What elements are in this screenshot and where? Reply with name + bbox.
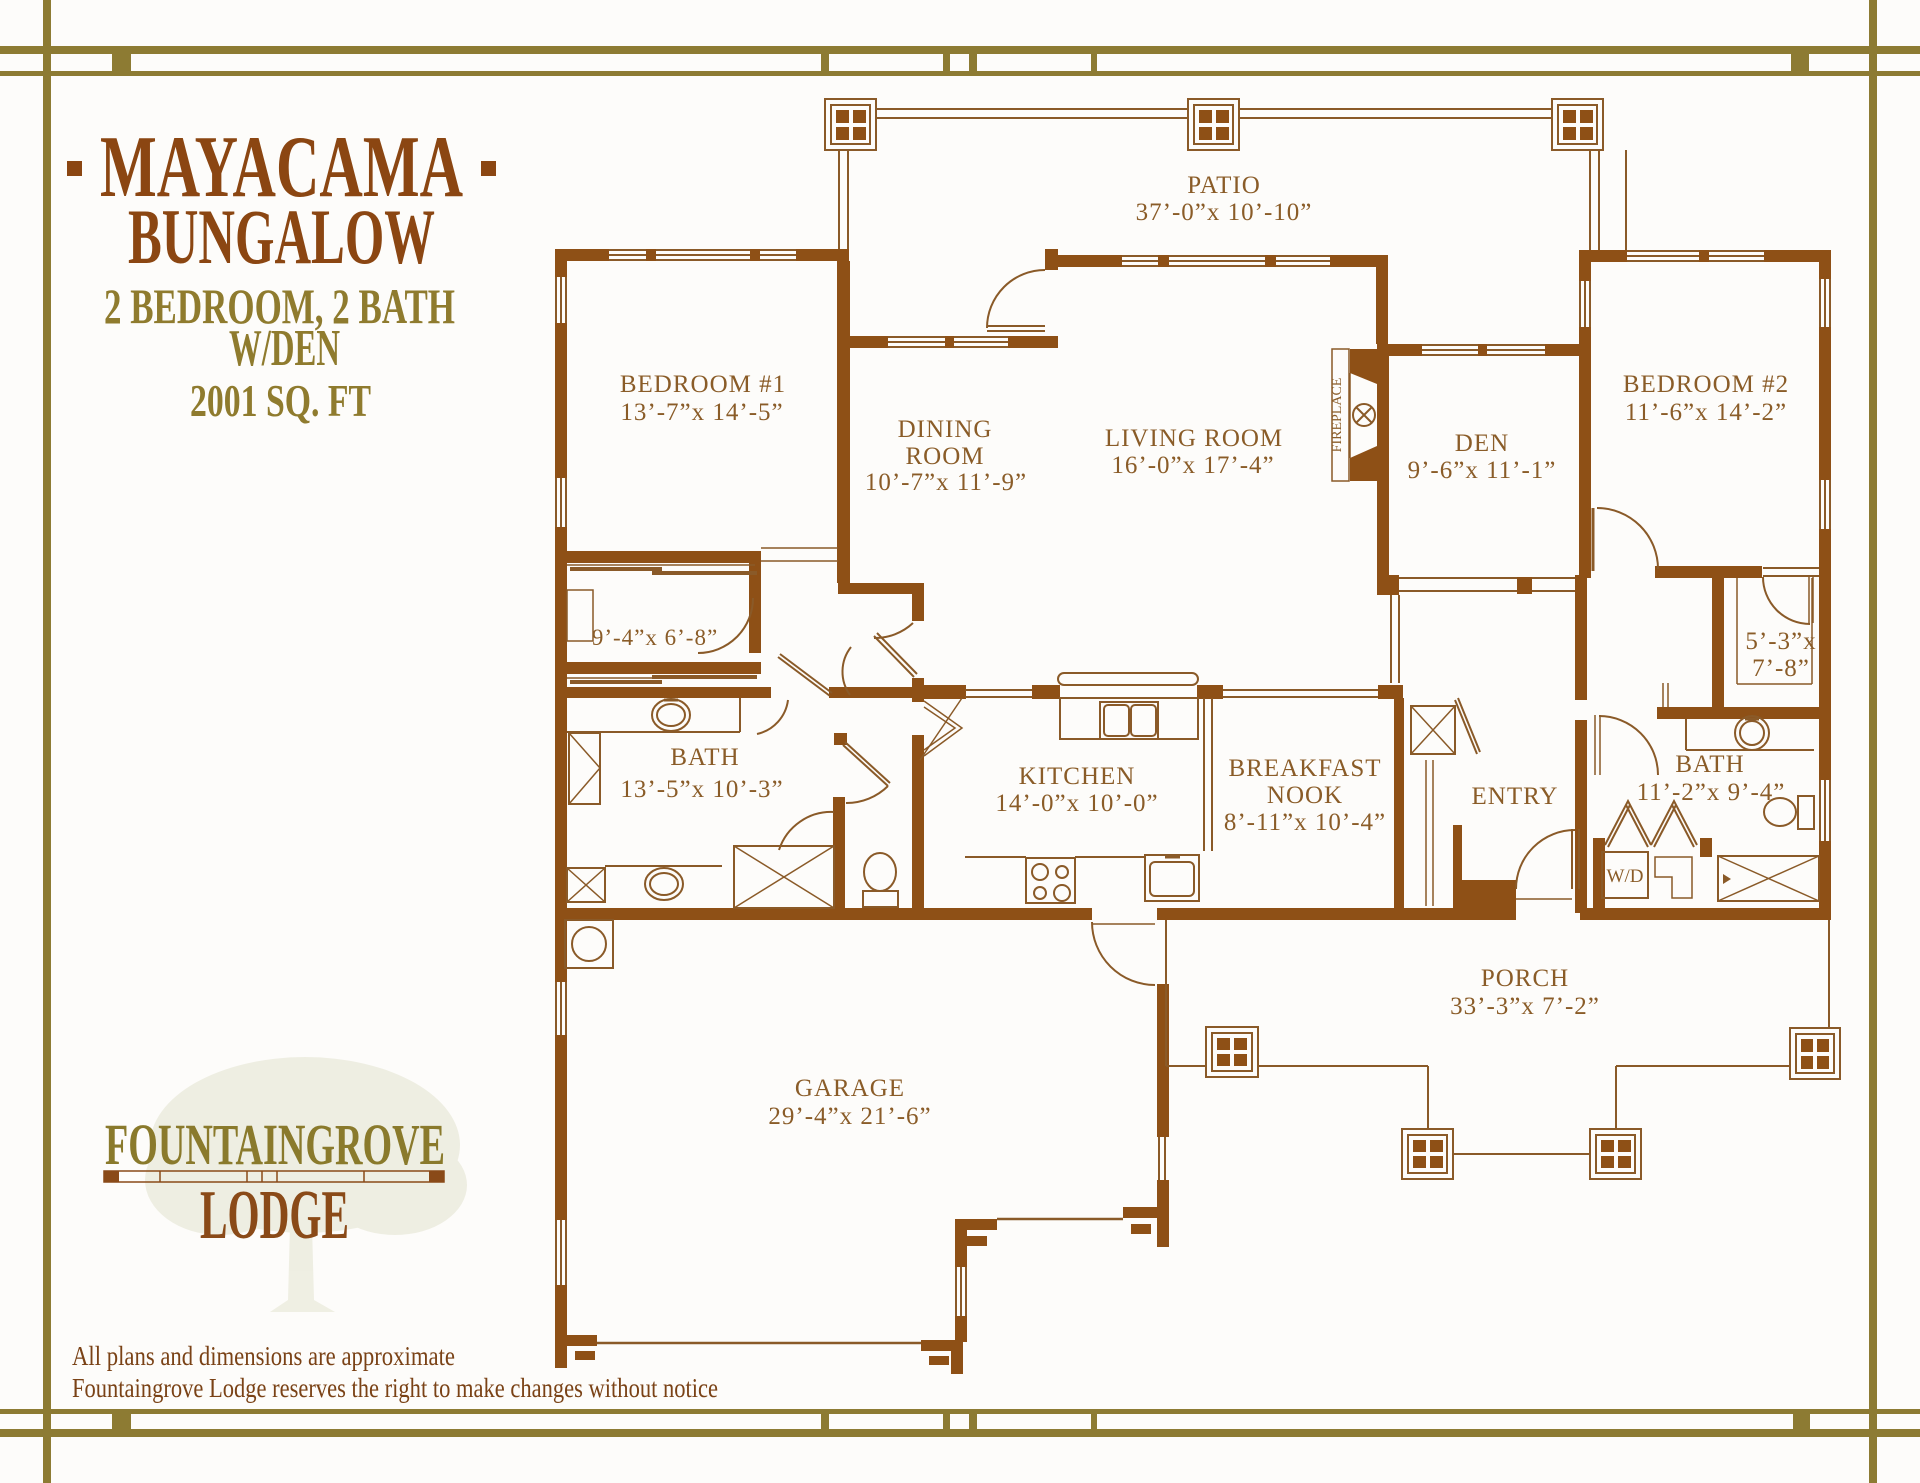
svg-text:10’-7”x 11’-9”: 10’-7”x 11’-9” xyxy=(865,469,1027,496)
svg-text:37’-0”x 10’-10”: 37’-0”x 10’-10” xyxy=(1136,199,1313,226)
svg-text:LODGE: LODGE xyxy=(200,1177,349,1254)
svg-text:11’-2”x 9’-4”: 11’-2”x 9’-4” xyxy=(1637,779,1786,806)
svg-text:13’-7”x 14’-5”: 13’-7”x 14’-5” xyxy=(620,399,783,426)
svg-text:FOUNTAINGROVE: FOUNTAINGROVE xyxy=(105,1112,445,1177)
svg-text:W/D: W/D xyxy=(1607,866,1644,887)
svg-text:14’-0”x 10’-0”: 14’-0”x 10’-0” xyxy=(995,790,1158,817)
svg-text:FIREPLACE: FIREPLACE xyxy=(1330,378,1345,453)
svg-text:KITCHEN: KITCHEN xyxy=(1019,763,1136,790)
svg-text:7’-8”: 7’-8” xyxy=(1752,655,1810,682)
svg-text:33’-3”x 7’-2”: 33’-3”x 7’-2” xyxy=(1450,993,1600,1020)
svg-text:11’-6”x 14’-2”: 11’-6”x 14’-2” xyxy=(1625,399,1787,426)
svg-text:NOOK: NOOK xyxy=(1267,782,1343,809)
svg-text:W/DEN: W/DEN xyxy=(229,320,340,377)
svg-text:ROOM: ROOM xyxy=(905,443,984,470)
svg-text:BATH: BATH xyxy=(670,744,739,771)
svg-text:BREAKFAST: BREAKFAST xyxy=(1228,755,1381,782)
svg-text:DEN: DEN xyxy=(1455,430,1509,457)
svg-text:ENTRY: ENTRY xyxy=(1472,783,1559,810)
svg-text:29’-4”x 21’-6”: 29’-4”x 21’-6” xyxy=(768,1103,931,1130)
svg-text:13’-5”x 10’-3”: 13’-5”x 10’-3” xyxy=(620,776,783,803)
svg-text:BUNGALOW: BUNGALOW xyxy=(128,193,435,280)
svg-text:5’-3”x: 5’-3”x xyxy=(1745,628,1816,655)
svg-text:All plans and dimensions are a: All plans and dimensions are approximate xyxy=(72,1341,455,1371)
svg-text:PORCH: PORCH xyxy=(1481,965,1569,992)
svg-text:8’-11”x 10’-4”: 8’-11”x 10’-4” xyxy=(1224,809,1386,836)
svg-text:Fountaingrove Lodge reserves t: Fountaingrove Lodge reserves the right t… xyxy=(72,1373,718,1403)
svg-text:PATIO: PATIO xyxy=(1187,172,1261,199)
svg-text:9’-4”x 6’-8”: 9’-4”x 6’-8” xyxy=(592,625,718,650)
svg-text:LIVING ROOM: LIVING ROOM xyxy=(1105,425,1283,452)
svg-text:9’-6”x 11’-1”: 9’-6”x 11’-1” xyxy=(1408,457,1557,484)
svg-text:16’-0”x 17’-4”: 16’-0”x 17’-4” xyxy=(1111,452,1274,479)
svg-text:BATH: BATH xyxy=(1675,751,1744,778)
svg-text:BEDROOM #2: BEDROOM #2 xyxy=(1623,371,1789,398)
svg-text:2001 SQ. FT: 2001 SQ. FT xyxy=(190,375,371,426)
svg-text:BEDROOM #1: BEDROOM #1 xyxy=(620,371,786,398)
svg-text:GARAGE: GARAGE xyxy=(795,1075,905,1102)
svg-text:DINING: DINING xyxy=(898,416,993,443)
